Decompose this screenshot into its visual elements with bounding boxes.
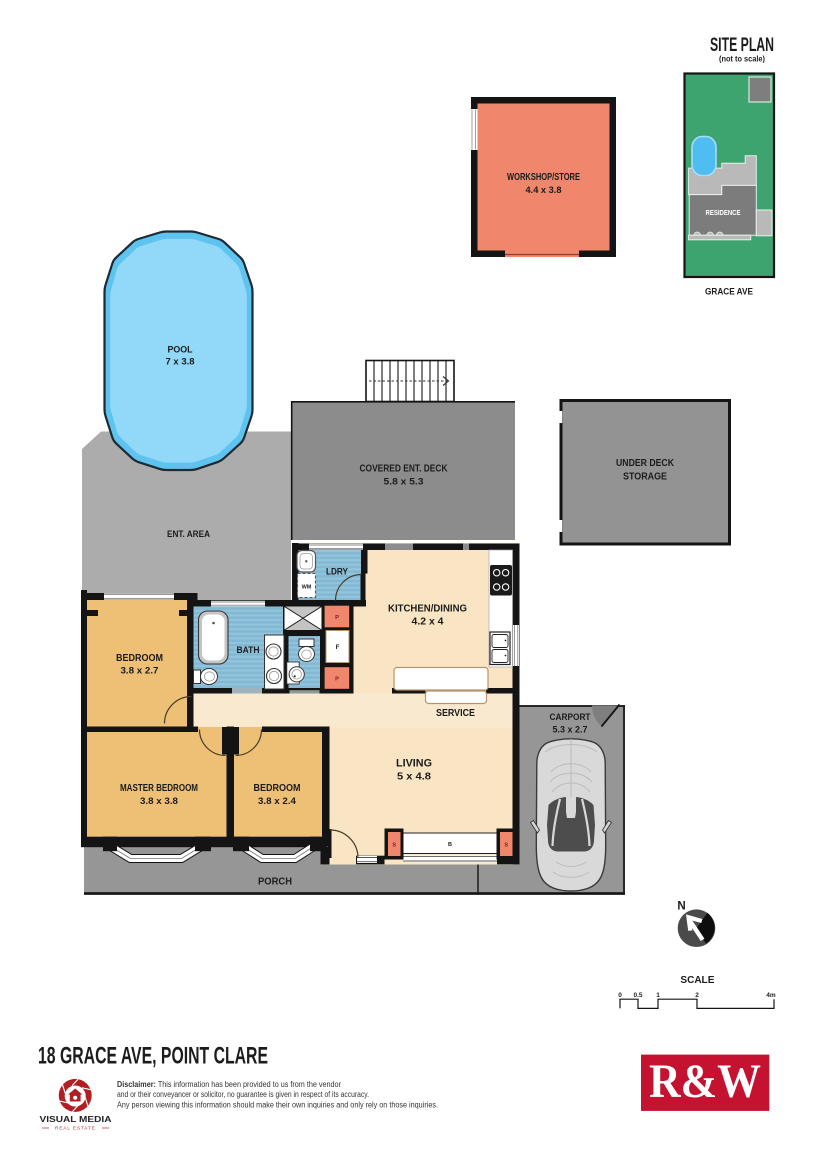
svg-text:R&W: R&W xyxy=(649,1055,761,1108)
svg-text:WORKSHOP/STORE: WORKSHOP/STORE xyxy=(507,171,580,183)
svg-text:SERVICE: SERVICE xyxy=(436,708,475,719)
svg-text:P: P xyxy=(335,677,339,683)
svg-text:BEDROOM: BEDROOM xyxy=(116,653,163,664)
svg-text:WM: WM xyxy=(302,585,312,591)
svg-text:COVERED ENT. DECK: COVERED ENT. DECK xyxy=(360,464,449,475)
svg-text:4.2 x 4: 4.2 x 4 xyxy=(412,617,444,628)
svg-text:VISUAL MEDIA: VISUAL MEDIA xyxy=(40,1115,112,1124)
svg-text:REAL ESTATE: REAL ESTATE xyxy=(55,1126,96,1131)
svg-text:LDRY: LDRY xyxy=(326,567,348,577)
svg-text:ENT. AREA: ENT. AREA xyxy=(167,529,210,539)
svg-text:3.8 x 2.7: 3.8 x 2.7 xyxy=(121,666,159,677)
svg-text:(not to scale): (not to scale) xyxy=(719,54,765,64)
svg-text:P: P xyxy=(335,615,339,621)
svg-text:Disclaimer: This information h: Disclaimer: This information has been pr… xyxy=(117,1080,341,1089)
svg-text:4.4 x 3.8: 4.4 x 3.8 xyxy=(526,185,562,196)
svg-text:B: B xyxy=(448,842,452,848)
svg-text:STORAGE: STORAGE xyxy=(623,472,667,483)
svg-text:7 x 3.8: 7 x 3.8 xyxy=(166,357,195,367)
svg-text:S: S xyxy=(504,843,508,849)
svg-text:KITCHEN/DINING: KITCHEN/DINING xyxy=(388,603,467,615)
svg-text:3.8 x 3.8: 3.8 x 3.8 xyxy=(140,796,178,807)
svg-text:F: F xyxy=(336,644,340,651)
svg-text:BATH: BATH xyxy=(237,645,260,655)
svg-text:5.8 x 5.3: 5.8 x 5.3 xyxy=(384,477,424,488)
svg-text:4m: 4m xyxy=(766,992,776,999)
svg-text:POOL: POOL xyxy=(168,345,193,356)
svg-text:3.8 x 2.4: 3.8 x 2.4 xyxy=(258,796,297,807)
svg-text:2: 2 xyxy=(695,992,699,999)
svg-text:SCALE: SCALE xyxy=(680,975,714,986)
svg-text:5.3 x 2.7: 5.3 x 2.7 xyxy=(553,725,588,735)
svg-text:GRACE AVE: GRACE AVE xyxy=(705,287,753,298)
svg-text:LIVING: LIVING xyxy=(396,758,432,770)
svg-text:N: N xyxy=(677,901,685,913)
svg-text:0: 0 xyxy=(618,992,622,999)
svg-text:18 GRACE AVE, POINT CLARE: 18 GRACE AVE, POINT CLARE xyxy=(38,1043,268,1070)
svg-text:CARPORT: CARPORT xyxy=(550,712,591,723)
svg-text:PORCH: PORCH xyxy=(258,877,292,888)
svg-text:S: S xyxy=(392,843,396,849)
svg-text:5 x 4.8: 5 x 4.8 xyxy=(397,771,431,783)
svg-text:Any person viewing this inform: Any person viewing this information shou… xyxy=(117,1101,438,1110)
svg-text:and or their conveyancer or so: and or their conveyancer or solicitor, n… xyxy=(117,1090,369,1099)
svg-text:1: 1 xyxy=(656,992,660,999)
svg-text:UNDER DECK: UNDER DECK xyxy=(616,458,675,469)
svg-text:BEDROOM: BEDROOM xyxy=(254,783,301,794)
svg-text:MASTER BEDROOM: MASTER BEDROOM xyxy=(120,783,198,794)
svg-text:RESIDENCE: RESIDENCE xyxy=(706,208,741,217)
svg-text:0.5: 0.5 xyxy=(633,992,642,999)
